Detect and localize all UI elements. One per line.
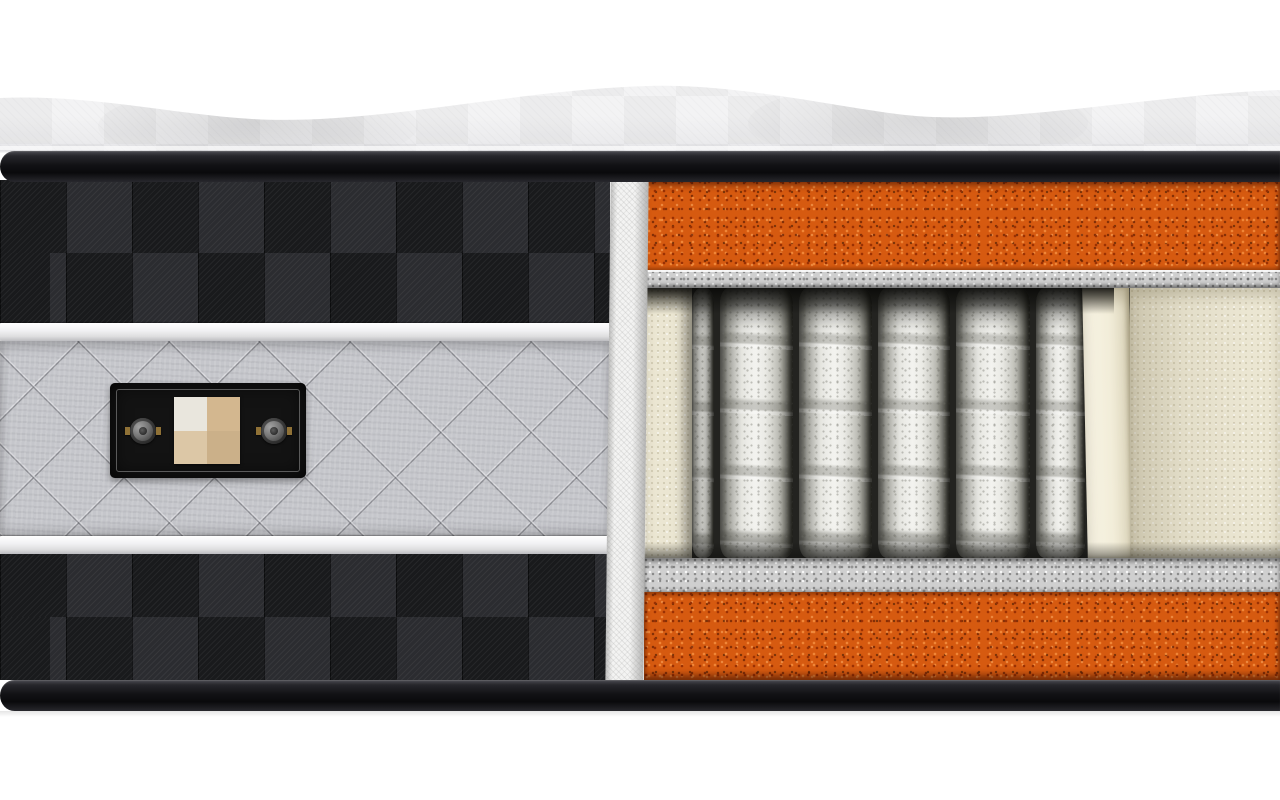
corner-shadow <box>1130 288 1250 558</box>
foam-wall-left <box>644 288 692 558</box>
side-panel-checkered-lower <box>0 554 610 680</box>
cavity-ceiling-shadow <box>644 288 1114 314</box>
vent-tab <box>287 427 292 435</box>
spring-column <box>956 288 1030 558</box>
top-rail <box>0 151 1280 182</box>
spring-column <box>720 288 793 558</box>
pocket-springs <box>692 288 1085 558</box>
spring-column <box>878 288 950 558</box>
spring-column <box>799 288 872 558</box>
vent-tab <box>125 427 130 435</box>
bottom-rail <box>0 680 1280 711</box>
side-panel <box>0 180 610 680</box>
label-vent-right <box>261 418 287 444</box>
mattress-cutaway-render <box>0 0 1280 800</box>
side-panel-checkered-upper <box>0 180 610 323</box>
label-swatch <box>174 397 240 464</box>
checker-row <box>0 617 610 680</box>
piping-lower <box>0 536 610 554</box>
spring-cavity <box>644 288 1280 558</box>
foam-edge-right-highlight <box>1082 288 1135 558</box>
foam-layer-top-orange <box>644 180 1280 270</box>
quilted-top-surface <box>0 0 1280 153</box>
quilt-wave-shape <box>0 0 1280 153</box>
foam-layer-bottom-orange <box>644 592 1280 680</box>
checker-row <box>0 180 610 253</box>
care-label <box>110 383 306 478</box>
spring-column <box>692 288 714 558</box>
swatch-bottom-right <box>207 431 240 465</box>
cavity-floor-shadow <box>644 542 1280 558</box>
piping-upper <box>0 323 610 341</box>
foam-wall-right <box>1130 288 1280 558</box>
vent-pin <box>139 427 147 435</box>
vent-pin <box>270 427 278 435</box>
ground-shadow <box>0 711 1280 717</box>
swatch-bottom-left <box>174 431 207 465</box>
spring-column <box>1036 288 1085 558</box>
checker-row <box>0 554 610 617</box>
vent-tab <box>256 427 261 435</box>
felt-layer-top <box>644 270 1280 288</box>
label-vent-left <box>130 418 156 444</box>
vent-tab <box>156 427 161 435</box>
swatch-top-right <box>207 397 240 431</box>
swatch-top-left <box>174 397 207 431</box>
checker-row <box>0 253 610 323</box>
cut-edge-fabric <box>605 152 649 710</box>
felt-layer-bottom <box>644 558 1280 592</box>
